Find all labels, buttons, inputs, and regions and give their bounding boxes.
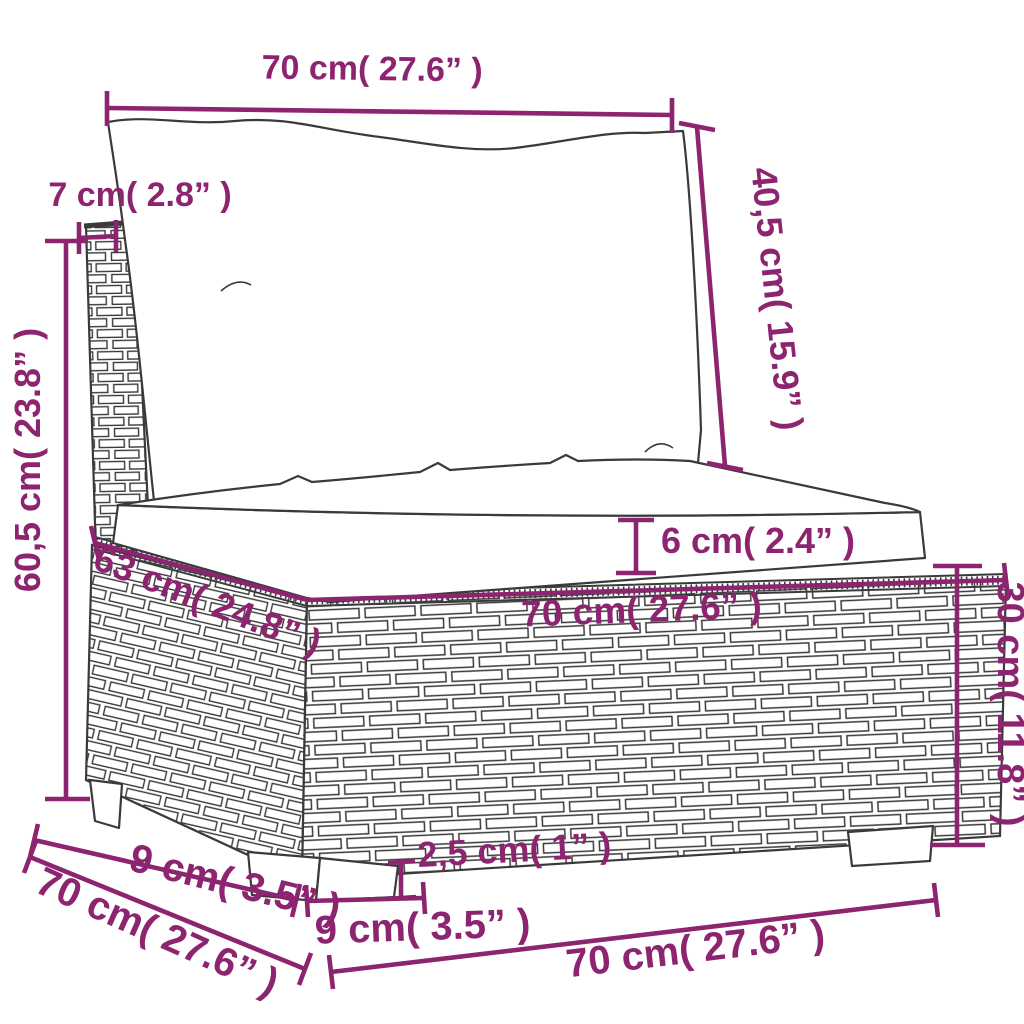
dim-label-seat-cushion-thickness: 6 cm( 2.4” ) xyxy=(661,520,855,561)
leg-left-side xyxy=(90,780,122,828)
dim-label-back-cushion-width: 70 cm( 27.6” ) xyxy=(261,48,483,89)
dim-total-height-line xyxy=(45,241,90,799)
dim-label-leg-height: 2,5 cm( 1” ) xyxy=(416,824,612,875)
diagram-canvas: 70 cm( 27.6” ) 7 cm( 2.8” ) 60,5 cm( 23.… xyxy=(0,0,1024,1024)
dim-label-back-panel-thickness: 7 cm( 2.8” ) xyxy=(48,176,231,214)
leg-front-right xyxy=(848,826,933,866)
dim-label-base-width: 70 cm( 27.6” ) xyxy=(564,912,828,986)
dim-label-leg-width: 9 cm( 3.5” ) xyxy=(314,901,531,952)
dim-label-back-cushion-height: 40,5 cm( 15.9” ) xyxy=(743,165,811,432)
dimension-diagram: 70 cm( 27.6” ) 7 cm( 2.8” ) 60,5 cm( 23.… xyxy=(0,0,1024,1024)
dim-label-total-height: 60,5 cm( 23.8” ) xyxy=(7,328,48,592)
sofa-drawing xyxy=(84,119,1006,901)
dim-label-base-height: 30 cm( 11.8” ) xyxy=(989,581,1024,826)
